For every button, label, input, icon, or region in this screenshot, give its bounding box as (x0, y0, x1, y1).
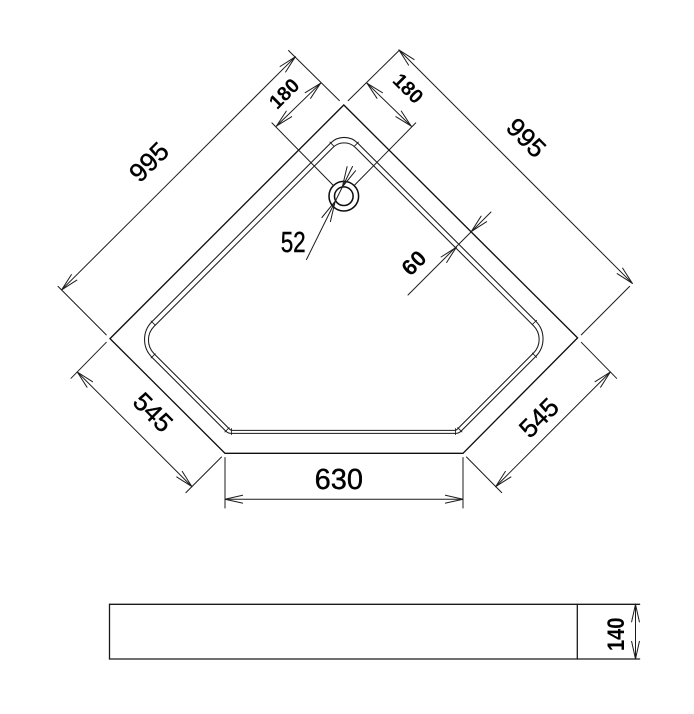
svg-text:545: 545 (127, 386, 179, 438)
svg-text:545: 545 (513, 392, 565, 444)
svg-text:140: 140 (603, 618, 630, 652)
svg-text:630: 630 (315, 464, 363, 496)
svg-text:52: 52 (281, 227, 306, 259)
svg-text:995: 995 (500, 112, 552, 164)
svg-text:60: 60 (396, 246, 431, 281)
svg-text:180: 180 (388, 69, 427, 108)
svg-text:995: 995 (123, 136, 175, 188)
